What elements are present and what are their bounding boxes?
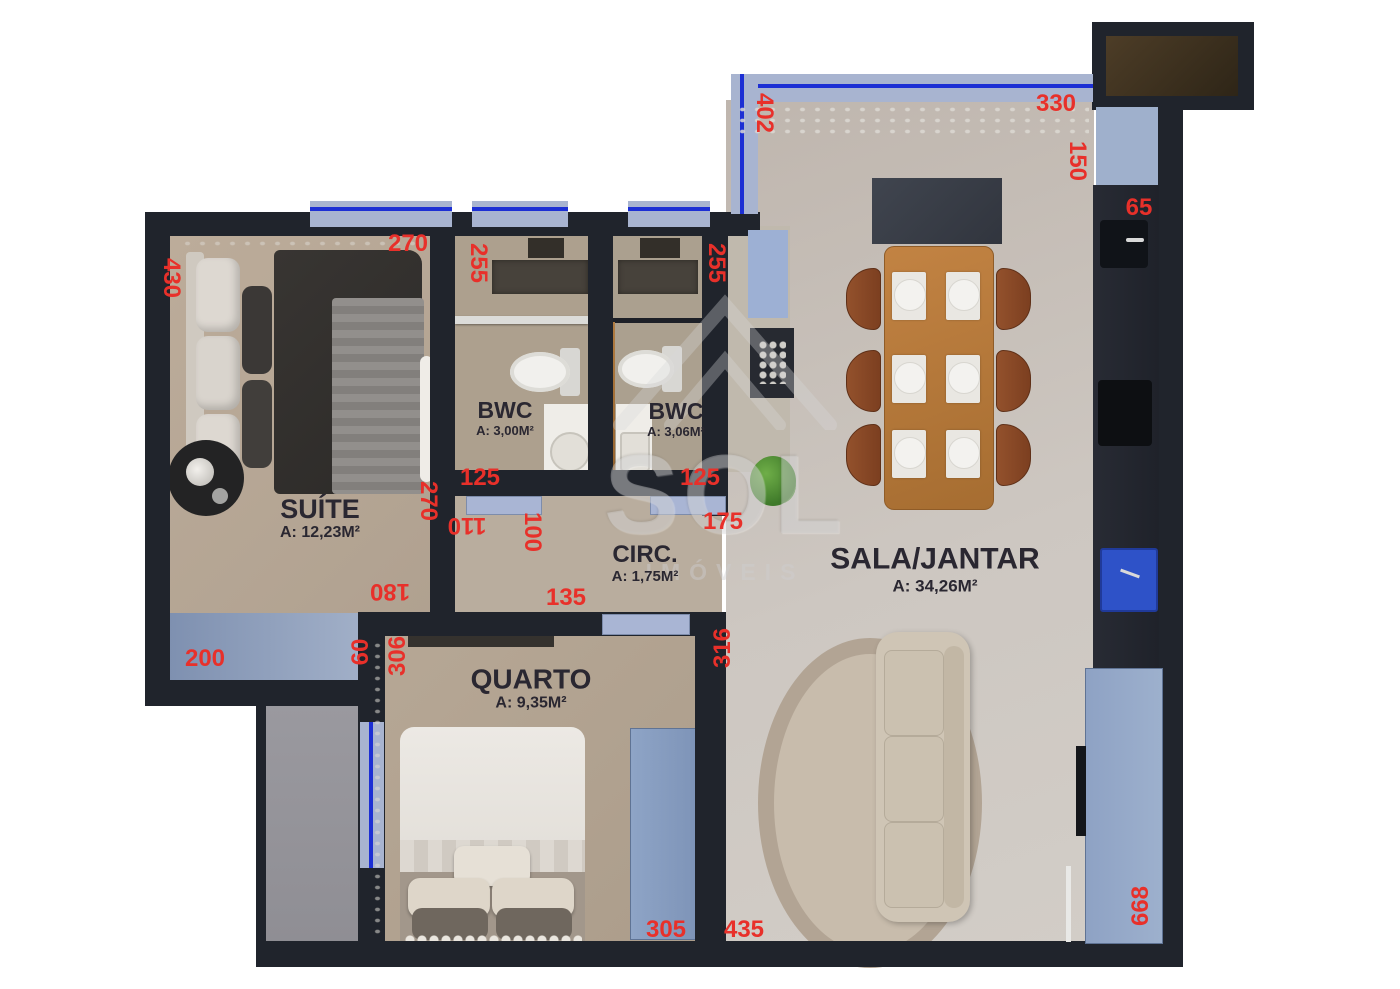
sofa-seat-cushion xyxy=(884,822,944,908)
dimension-label: 668 xyxy=(1127,886,1155,926)
dimension-label: 100 xyxy=(518,512,546,552)
kitchen-blue-sink xyxy=(1100,548,1158,612)
placemat xyxy=(946,272,980,320)
shower-tile-strip xyxy=(618,260,698,294)
wall xyxy=(256,700,266,941)
toilet-bowl xyxy=(618,350,674,388)
suite-table-decor xyxy=(212,488,228,504)
terrace-floor xyxy=(265,704,360,942)
kitchen-window xyxy=(1096,107,1158,185)
placemat xyxy=(946,355,980,403)
utility-shaft-inner xyxy=(1106,36,1238,96)
sofa-seat-cushion xyxy=(884,650,944,736)
cooktop xyxy=(1098,380,1152,446)
room-label-circ: CIRC. A: 1,75M² xyxy=(612,542,679,586)
toilet-bowl xyxy=(510,352,570,392)
dimension-label: 150 xyxy=(1063,141,1091,181)
placemat xyxy=(892,272,926,320)
bar-bottles xyxy=(758,340,786,384)
placemat xyxy=(946,430,980,478)
suite-accent-pillow xyxy=(242,380,272,468)
dimension-label: 305 xyxy=(646,916,686,944)
room-label-bwc-left: BWC A: 3,00M² xyxy=(476,398,534,438)
suite-pillow xyxy=(196,258,240,332)
dimension-label: 330 xyxy=(1036,90,1076,118)
dimension-label: 270 xyxy=(414,481,442,521)
room-name: BWC xyxy=(476,398,534,424)
room-area: A: 1,75M² xyxy=(612,569,679,586)
room-name: SUÍTE xyxy=(280,494,360,524)
shower-divider xyxy=(611,318,702,323)
dimension-label: 175 xyxy=(703,508,743,536)
room-name: QUARTO xyxy=(471,663,592,694)
window-glass xyxy=(628,201,710,227)
room-area: A: 3,00M² xyxy=(476,424,534,439)
room-label-quarto: QUARTO A: 9,35M² xyxy=(471,663,592,712)
suite-knit-throw xyxy=(332,298,424,494)
door-sill xyxy=(602,614,690,635)
wall xyxy=(256,941,1180,967)
dimension-label: 402 xyxy=(750,93,778,133)
room-label-sala: SALA/JANTAR A: 34,26M² xyxy=(830,543,1039,596)
room-area: A: 12,23M² xyxy=(280,524,360,542)
dimension-label: 65 xyxy=(1126,194,1153,222)
room-label-suite: SUÍTE A: 12,23M² xyxy=(280,494,360,542)
dimension-label: 110 xyxy=(448,511,487,539)
suite-accent-pillow xyxy=(242,286,272,374)
wall xyxy=(430,212,455,616)
kitchen-faucet xyxy=(1126,238,1144,242)
door-frame-line xyxy=(1066,866,1071,942)
vanity-sink xyxy=(550,432,590,472)
shower-niche xyxy=(528,238,564,258)
room-label-bwc-right: BWC A: 3,06M² xyxy=(647,399,705,439)
dimension-label: 125 xyxy=(680,464,720,492)
sideboard xyxy=(872,178,1002,244)
suite-pillow xyxy=(196,336,240,410)
dimension-label: 255 xyxy=(702,243,730,283)
room-name: CIRC. xyxy=(612,542,679,569)
dimension-label: 430 xyxy=(157,258,185,298)
room-area: A: 9,35M² xyxy=(471,695,592,713)
dimension-label: 306 xyxy=(384,636,412,676)
room-name: BWC xyxy=(647,399,705,425)
placemat xyxy=(892,430,926,478)
dimension-label: 200 xyxy=(185,645,225,673)
room-area: A: 3,06M² xyxy=(647,425,705,440)
suite-lamp xyxy=(186,458,214,486)
room-name: SALA/JANTAR xyxy=(830,543,1039,577)
window-glass xyxy=(472,201,568,227)
quarto-closet xyxy=(630,728,697,940)
room-area: A: 34,26M² xyxy=(830,576,1039,595)
dimension-label: 270 xyxy=(388,230,428,258)
vanity-basin xyxy=(620,432,650,472)
dimension-label: 435 xyxy=(724,916,764,944)
shower-glass-divider xyxy=(455,316,588,324)
floor-plan: SOL IMÓVEIS SUÍTE A: 12,23M² BWC A: 3,00… xyxy=(0,0,1400,989)
dimension-label: 135 xyxy=(546,584,586,612)
shower-niche xyxy=(640,238,680,258)
planter-strip xyxy=(370,640,384,940)
wall xyxy=(588,212,613,496)
sofa-back-cushion xyxy=(944,646,964,908)
window-glass xyxy=(310,201,452,227)
dimension-label: 125 xyxy=(460,464,500,492)
dimension-label: 180 xyxy=(370,577,410,605)
shower-tile-strip xyxy=(492,260,588,294)
kitchen-sink xyxy=(1100,220,1148,268)
dimension-label: 316 xyxy=(709,628,737,668)
suite-decor-garland xyxy=(180,238,420,252)
tv-panel xyxy=(1076,746,1086,836)
sofa-seat-cushion xyxy=(884,736,944,822)
dimension-label: 60 xyxy=(347,639,375,666)
potted-plant xyxy=(750,456,796,506)
placemat xyxy=(892,355,926,403)
bar-upper-panel xyxy=(748,230,788,318)
dimension-label: 255 xyxy=(464,243,492,283)
